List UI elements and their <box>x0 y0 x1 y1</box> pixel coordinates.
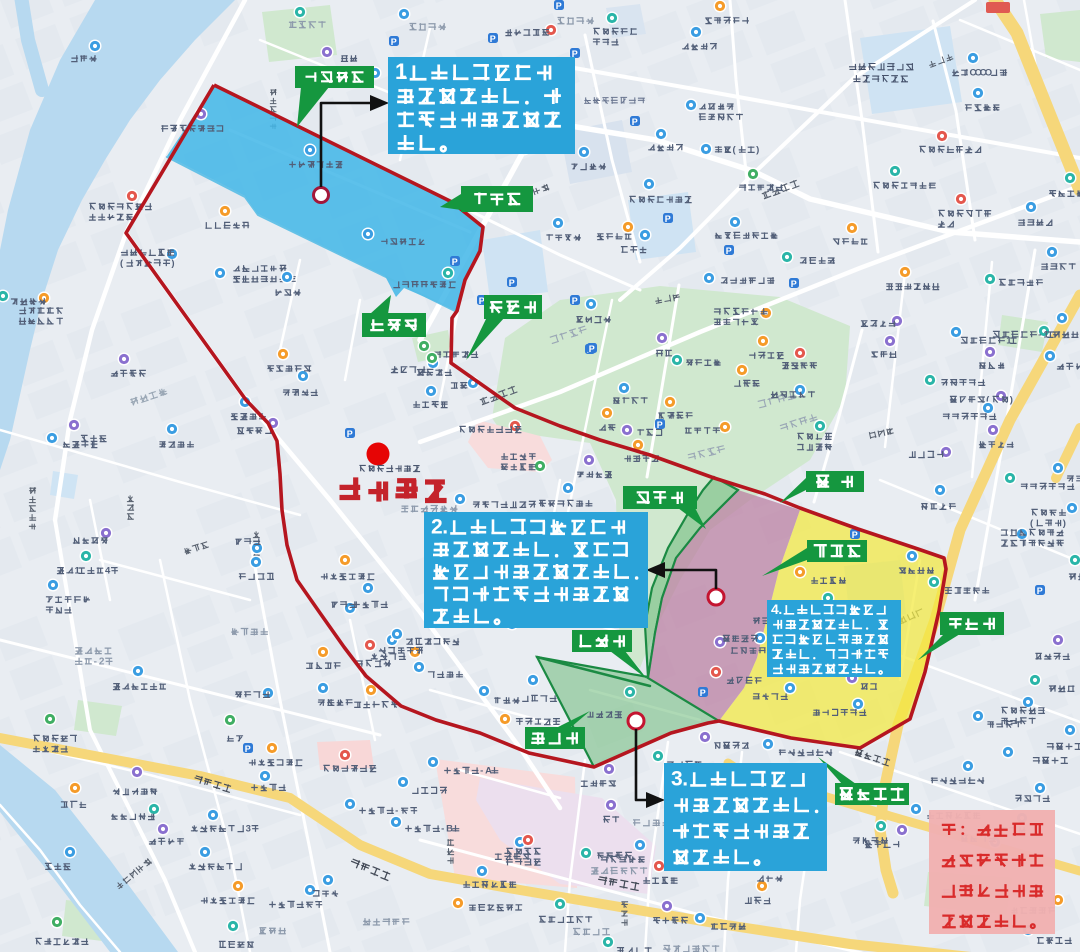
svg-text:2: 2 <box>431 515 443 538</box>
svg-text:P: P <box>657 420 663 430</box>
svg-text:-: - <box>94 656 97 667</box>
svg-text:P: P <box>572 296 578 306</box>
svg-text:P: P <box>1037 586 1043 596</box>
svg-text:3: 3 <box>671 767 683 790</box>
svg-text:P: P <box>852 530 858 540</box>
svg-text:.: . <box>401 59 407 84</box>
svg-text:.: . <box>442 515 448 538</box>
svg-text:P: P <box>665 214 671 224</box>
svg-text:P: P <box>700 688 706 698</box>
svg-text:O: O <box>985 67 992 78</box>
svg-text:-: - <box>441 823 444 834</box>
svg-text:P: P <box>452 257 458 267</box>
svg-text:P: P <box>245 744 251 754</box>
svg-text:1: 1 <box>1006 335 1012 346</box>
svg-text:.: . <box>682 767 688 790</box>
svg-text:): ) <box>171 258 174 269</box>
svg-text:1: 1 <box>1043 329 1049 340</box>
svg-text:3: 3 <box>246 823 251 834</box>
svg-text:P: P <box>556 1 562 11</box>
svg-text:): ) <box>1010 394 1013 405</box>
svg-text:-: - <box>1038 329 1041 340</box>
svg-text:A: A <box>485 765 492 776</box>
svg-text:P: P <box>391 37 397 47</box>
svg-text:P: P <box>347 429 353 439</box>
svg-text:B: B <box>446 823 453 834</box>
svg-text:P: P <box>726 246 732 256</box>
svg-text:P: P <box>632 117 638 127</box>
svg-text:4: 4 <box>105 565 111 576</box>
svg-text:P: P <box>791 279 797 289</box>
svg-text:P: P <box>490 34 496 44</box>
svg-text:): ) <box>756 144 759 155</box>
svg-text:-: - <box>480 765 483 776</box>
svg-text:P: P <box>479 296 485 306</box>
svg-text:): ) <box>1063 518 1066 529</box>
svg-text:1: 1 <box>75 565 81 576</box>
svg-text:P: P <box>509 278 515 288</box>
svg-text:2: 2 <box>99 656 105 667</box>
svg-text:P: P <box>589 344 595 354</box>
svg-text:-: - <box>395 805 398 816</box>
svg-text:.: . <box>778 601 782 617</box>
